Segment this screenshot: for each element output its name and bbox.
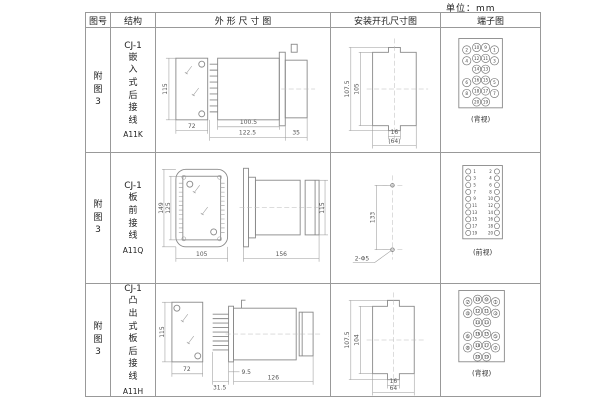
outline-diagram: 115 72 9.5 31.5 126	[156, 284, 330, 397]
svg-text:6: 6	[465, 80, 468, 85]
svg-text:11: 11	[484, 308, 490, 313]
terminal-cell: 2109141211314136161558181772019 (背视)	[441, 28, 541, 153]
svg-text:18: 18	[488, 223, 494, 228]
svg-text:1: 1	[494, 299, 497, 304]
header-fig-no: 图号	[86, 13, 111, 28]
outline-cell: 149 125 105 156 115	[156, 153, 331, 284]
view-label: (前视)	[473, 247, 493, 256]
dim-front-width: 72	[188, 122, 196, 129]
structure-desc: 嵌入式后接线	[128, 52, 137, 128]
svg-text:10: 10	[474, 44, 480, 49]
svg-text:8: 8	[466, 345, 469, 350]
structure-desc: 板前接线	[128, 192, 137, 242]
install-cell: 133 2-Φ5	[331, 153, 441, 284]
svg-text:4: 4	[465, 58, 468, 63]
dim-side-length: 156	[276, 250, 288, 257]
svg-text:3: 3	[473, 175, 476, 180]
dim-cutout-width: (64)	[388, 138, 400, 145]
svg-text:20: 20	[475, 354, 481, 359]
svg-text:10: 10	[488, 196, 494, 201]
svg-text:15: 15	[472, 216, 478, 221]
dim-rear-depth: 35	[292, 129, 300, 136]
type-code: A11Q	[123, 246, 144, 255]
install-diagram: 107.5 105 16 (64)	[331, 28, 440, 153]
svg-text:4: 4	[466, 310, 469, 315]
dim-hole-spacing: 133	[370, 211, 377, 223]
svg-text:2: 2	[466, 299, 469, 304]
dim-side-height: 115	[319, 202, 326, 214]
svg-text:6: 6	[489, 182, 492, 187]
svg-text:17: 17	[472, 223, 478, 228]
svg-text:1: 1	[493, 47, 496, 52]
header-terminal: 端子图	[441, 13, 541, 28]
dim-cutout-outer-h: 107.5	[344, 80, 351, 97]
svg-text:1: 1	[473, 168, 476, 173]
structure-cell: CJ-1 嵌入式后接线 A11K	[111, 28, 156, 153]
svg-text:18: 18	[474, 88, 480, 93]
svg-text:11: 11	[472, 203, 478, 208]
dim-front-height: 115	[159, 326, 166, 338]
header-install: 安装开孔尺寸图	[331, 13, 441, 28]
terminal-grid: 2109141211314136161558181772019	[463, 295, 499, 361]
view-label: (背视)	[472, 368, 492, 377]
dim-cutout-inner-h: 104	[354, 334, 361, 346]
dim-front-width: 105	[196, 250, 208, 257]
outline-diagram: 149 125 105 156 115	[156, 153, 330, 284]
svg-text:9: 9	[473, 196, 476, 201]
spec-table: 图号 结构 外 形 尺 寸 图 安装开孔尺寸图 端子图 附图3 CJ-1 嵌入式…	[85, 12, 541, 397]
install-cell: 107.5 105 16 (64)	[331, 28, 441, 153]
hole-size-label: 2-Φ5	[355, 255, 370, 262]
svg-text:4: 4	[489, 175, 492, 180]
install-diagram: 133 2-Φ5	[331, 153, 440, 284]
fig-no-cell: 附图3	[86, 28, 111, 153]
terminal-diagram: 1234567891011121314151617181920 (前视)	[441, 153, 540, 284]
svg-text:7: 7	[493, 90, 496, 95]
model-label: CJ-1	[124, 284, 142, 294]
header-outline: 外 形 尺 寸 图	[156, 13, 331, 28]
terminal-cell: 1234567891011121314151617181920 (前视)	[441, 153, 541, 284]
svg-text:13: 13	[483, 66, 489, 71]
svg-text:8: 8	[465, 90, 468, 95]
svg-text:9: 9	[484, 44, 487, 49]
type-code: A11K	[123, 130, 143, 139]
svg-text:20: 20	[488, 230, 494, 235]
svg-text:17: 17	[483, 88, 489, 93]
svg-text:2: 2	[465, 47, 468, 52]
fig-no-text: 附图3	[93, 71, 102, 109]
svg-text:13: 13	[472, 209, 478, 214]
dim-body-depth: 126	[268, 374, 280, 381]
svg-text:14: 14	[488, 209, 494, 214]
svg-text:15: 15	[483, 77, 489, 82]
svg-text:8: 8	[489, 189, 492, 194]
svg-text:2: 2	[489, 168, 492, 173]
svg-text:3: 3	[493, 58, 496, 63]
install-cell: 107.5 104 16 64	[331, 284, 441, 397]
view-label: (背视)	[471, 114, 491, 123]
svg-text:19: 19	[472, 230, 478, 235]
svg-text:12: 12	[475, 308, 481, 313]
svg-text:9: 9	[485, 296, 488, 301]
type-code: A11H	[123, 387, 143, 396]
svg-text:10: 10	[475, 296, 481, 301]
fig-no-text: 附图3	[93, 321, 102, 359]
dim-total-depth: 122.5	[239, 129, 256, 136]
svg-text:16: 16	[475, 331, 481, 336]
dim-front-inner-h: 125	[165, 202, 172, 214]
outline-diagram: 115 72 100.5 122.5 35	[156, 28, 330, 153]
structure-desc: 凸出式板后接线	[128, 295, 137, 383]
outline-cell: 115 72 100.5 122.5 35	[156, 28, 331, 153]
model-label: CJ-1	[124, 181, 142, 191]
terminal-grid: 2109141211314136161558181772019	[463, 43, 499, 106]
structure-cell: CJ-1 板前接线 A11Q	[111, 153, 156, 284]
svg-text:5: 5	[473, 182, 476, 187]
svg-text:18: 18	[475, 342, 481, 347]
dim-front-height: 115	[162, 83, 169, 95]
terminal-cell: 2109141211314136161558181772019 (背视)	[441, 284, 541, 397]
svg-text:5: 5	[493, 80, 496, 85]
svg-text:17: 17	[484, 342, 490, 347]
terminal-diagram: 2109141211314136161558181772019 (背视)	[441, 28, 540, 153]
dim-slot-width: 16	[391, 129, 399, 136]
svg-text:16: 16	[474, 77, 480, 82]
svg-text:16: 16	[488, 216, 494, 221]
fig-no-text: 附图3	[93, 199, 102, 237]
dim-cutout-inner-h: 105	[354, 83, 361, 95]
dim-front-width: 72	[183, 365, 191, 372]
fig-no-cell: 附图3	[86, 153, 111, 284]
svg-text:12: 12	[474, 55, 480, 60]
svg-text:20: 20	[474, 99, 480, 104]
header-structure: 结构	[111, 13, 156, 28]
dim-body-depth: 100.5	[240, 118, 257, 125]
svg-text:14: 14	[475, 319, 481, 324]
svg-text:6: 6	[466, 333, 469, 338]
outline-cell: 115 72 9.5 31.5 126	[156, 284, 331, 397]
svg-text:14: 14	[474, 66, 480, 71]
install-diagram: 107.5 104 16 64	[331, 284, 440, 397]
svg-text:5: 5	[494, 333, 497, 338]
svg-text:15: 15	[484, 331, 490, 336]
terminal-diagram: 2109141211314136161558181772019 (背视)	[441, 284, 540, 397]
fig-no-cell: 附图3	[86, 284, 111, 397]
svg-text:19: 19	[483, 99, 489, 104]
svg-text:12: 12	[488, 203, 494, 208]
structure-cell: CJ-1 凸出式板后接线 A11H	[111, 284, 156, 397]
svg-text:7: 7	[494, 345, 497, 350]
dim-cutout-width: 64	[390, 385, 398, 392]
dim-pin-length: 31.5	[213, 384, 226, 391]
terminal-grid: 1234567891011121314151617181920	[466, 168, 500, 235]
dim-front-outer-h: 149	[158, 202, 165, 214]
svg-text:13: 13	[484, 319, 490, 324]
model-label: CJ-1	[124, 41, 142, 51]
dim-plate-depth: 9.5	[242, 368, 252, 375]
dim-cutout-outer-h: 107.5	[344, 331, 351, 348]
svg-text:7: 7	[473, 189, 476, 194]
dim-slot-width: 16	[390, 378, 398, 385]
svg-text:11: 11	[483, 55, 489, 60]
svg-text:3: 3	[494, 310, 497, 315]
svg-text:19: 19	[484, 354, 490, 359]
